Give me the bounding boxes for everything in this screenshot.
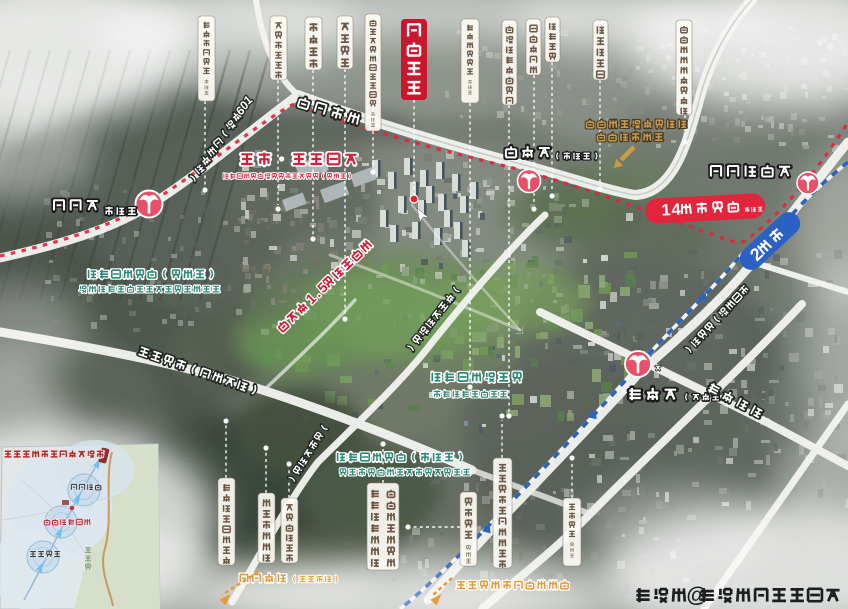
- svg-text:1: 1: [661, 201, 671, 219]
- svg-text:@: @: [686, 583, 707, 607]
- svg-text:4: 4: [671, 201, 682, 219]
